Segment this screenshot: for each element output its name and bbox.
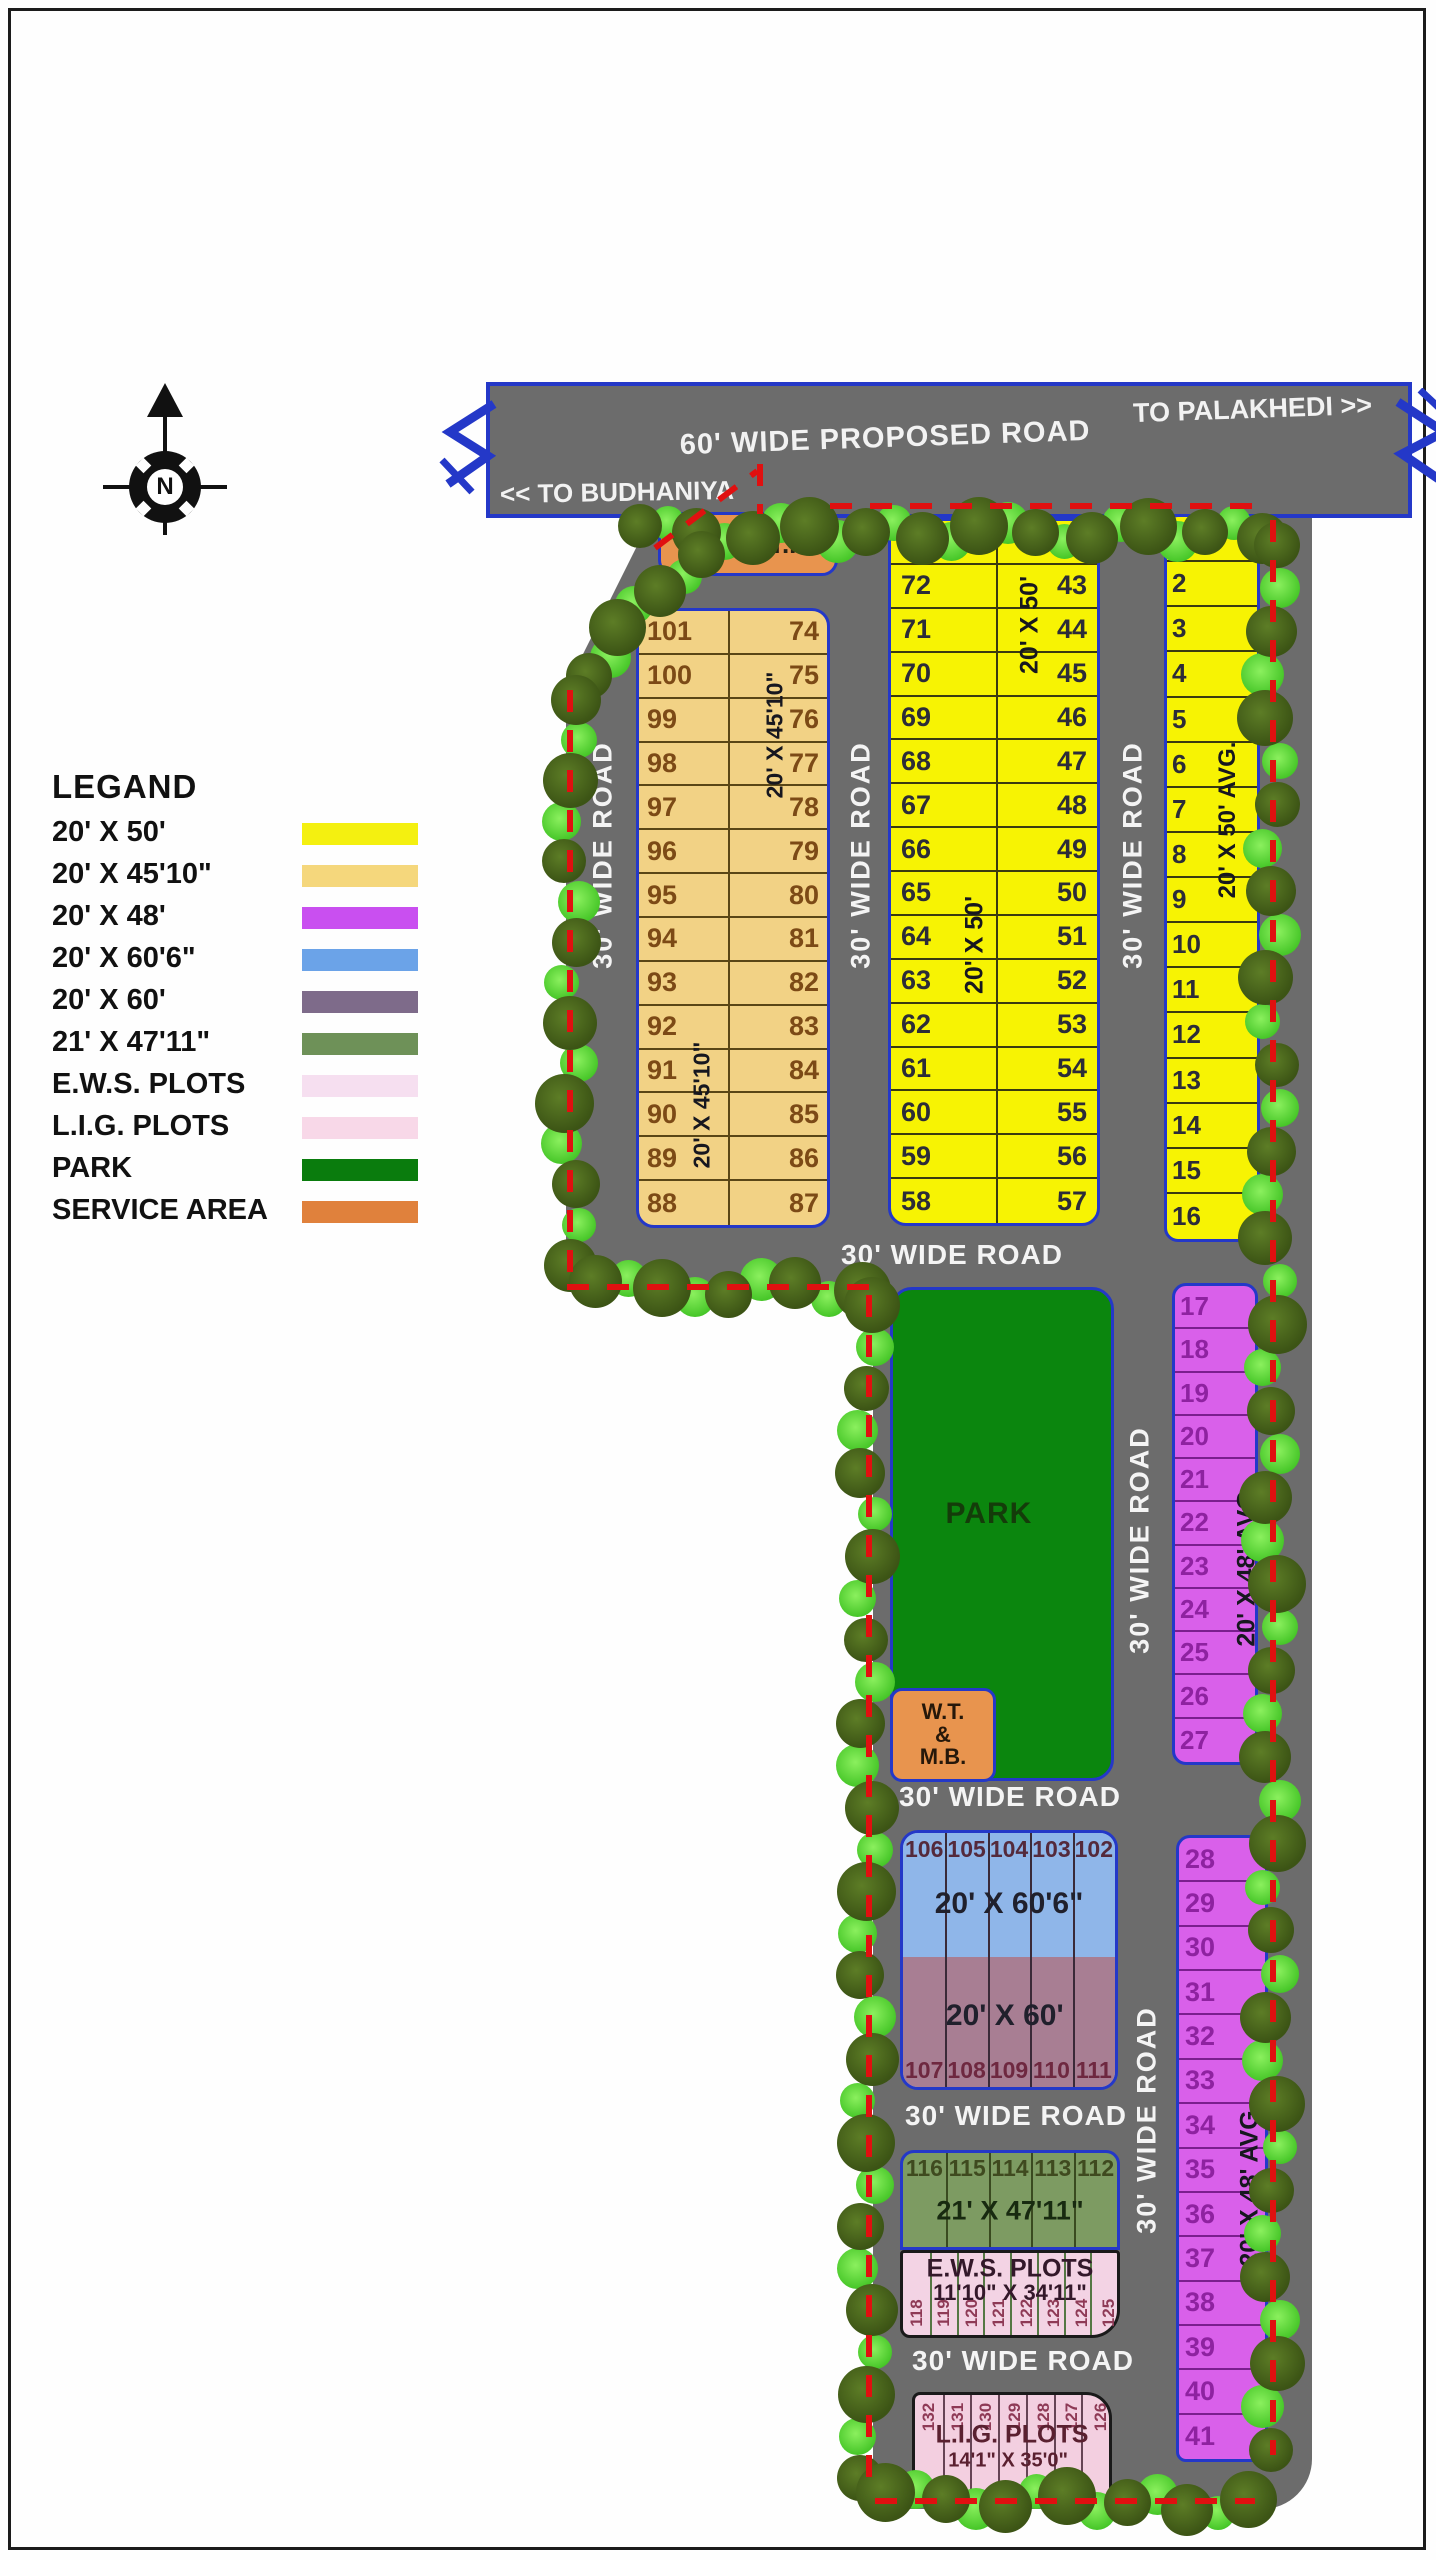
legend-item: 20' X 60' <box>52 984 452 1026</box>
legend-item-label: 20' X 45'10" <box>52 858 212 890</box>
boundary-dash <box>875 2498 1255 2504</box>
bush-icon <box>1263 2130 1297 2164</box>
tree-icon <box>1240 2252 1290 2302</box>
bush-icon <box>1260 568 1300 608</box>
bush-icon <box>1260 2300 1300 2340</box>
tree-icon <box>1012 509 1059 556</box>
legend-item-label: L.I.G. PLOTS <box>52 1110 229 1142</box>
legend-swatch <box>302 991 418 1013</box>
legend-swatch <box>302 949 418 971</box>
bush-icon <box>854 1996 896 2038</box>
legend-item-label: 20' X 50' <box>52 816 166 848</box>
road-label-vertical: 30' WIDE ROAD <box>846 741 877 968</box>
wt-mb-line: W.T. <box>922 1701 965 1723</box>
wt-mb-line: & <box>935 1724 951 1746</box>
bush-icon <box>856 1328 894 1366</box>
legend-item-label: 20' X 60'6" <box>52 942 196 974</box>
legend-swatch <box>302 1117 418 1139</box>
park-label: PARK <box>946 1497 1033 1531</box>
plot-113: 113 <box>1031 2155 1074 2182</box>
tree-icon <box>835 1448 885 1498</box>
plot-81: 81 <box>730 918 827 962</box>
plot-59: 59 <box>891 1135 998 1179</box>
plot-49: 49 <box>998 828 1097 872</box>
tree-icon <box>836 1951 884 1999</box>
legend-item: 20' X 50' <box>52 816 452 858</box>
tree-icon <box>1239 1731 1291 1783</box>
plot-56: 56 <box>998 1135 1097 1179</box>
plot-55: 55 <box>998 1091 1097 1135</box>
tree-icon <box>726 511 780 565</box>
plot-87: 87 <box>730 1181 827 1225</box>
plot-116: 116 <box>903 2155 946 2182</box>
road-label-vertical: 30' WIDE ROAD <box>1118 741 1149 968</box>
block-khaki-45-10: 1017410075997698779778967995809481938292… <box>636 608 830 1228</box>
legend-item: 20' X 45'10" <box>52 858 452 900</box>
plot-18: 18 <box>1175 1329 1255 1372</box>
tree-icon <box>1250 2336 1305 2391</box>
plot-71: 71 <box>891 609 998 653</box>
plot-51: 51 <box>998 916 1097 960</box>
plot-61: 61 <box>891 1048 998 1092</box>
plot-90: 90 <box>639 1093 730 1137</box>
boundary-dash <box>866 1295 872 2495</box>
plot-80: 80 <box>730 874 827 918</box>
column-divider <box>945 1833 947 2087</box>
plot-14: 14 <box>1167 1104 1257 1149</box>
plot-62: 62 <box>891 1004 998 1048</box>
compass-diamond <box>179 458 195 474</box>
bush-icon <box>1242 1174 1283 1215</box>
lig-title: L.I.G. PLOTS <box>936 2421 1089 2450</box>
tree-icon <box>1239 1471 1292 1524</box>
plot-82: 82 <box>730 962 827 1006</box>
mauve-plot-numbers: 107108109110111 <box>903 2057 1115 2084</box>
block-yellow-50: 7342724371447045694668476748664965506451… <box>888 518 1100 1226</box>
tree-icon <box>551 675 601 725</box>
green-plot-numbers: 116115114113112 <box>903 2155 1117 2182</box>
compass-diamond <box>179 501 195 517</box>
block-green-47-11: 116115114113112 21' X 47'11" <box>900 2150 1120 2250</box>
plot-45: 45 <box>998 653 1097 697</box>
plot-19: 19 <box>1175 1373 1255 1416</box>
plot-110: 110 <box>1030 2057 1072 2084</box>
plot-53: 53 <box>998 1004 1097 1048</box>
tree-icon <box>705 1271 752 1318</box>
plot-88: 88 <box>639 1181 730 1225</box>
legend-swatch <box>302 1033 418 1055</box>
plot-9: 9 <box>1167 878 1257 923</box>
plot-12: 12 <box>1167 1013 1257 1058</box>
plot-111: 111 <box>1073 2057 1115 2084</box>
road-label-vertical: 30' WIDE ROAD <box>1132 2006 1163 2233</box>
tree-icon <box>1254 522 1300 568</box>
legend-item: 20' X 48' <box>52 900 452 942</box>
legend-title: LEGAND <box>52 768 452 806</box>
plot-20: 20 <box>1175 1416 1255 1459</box>
plot-69: 69 <box>891 697 998 741</box>
plot-46: 46 <box>998 697 1097 741</box>
plot-105: 105 <box>945 1836 987 1863</box>
plot-43: 43 <box>998 565 1097 609</box>
tree-icon <box>837 2203 884 2250</box>
legend-swatch <box>302 1159 418 1181</box>
tree-icon <box>1255 1043 1299 1087</box>
tree-icon <box>1038 2467 1096 2525</box>
plot-84: 84 <box>730 1050 827 1094</box>
bush-icon <box>1242 2040 1283 2081</box>
tree-icon <box>845 1781 899 1835</box>
plot-86: 86 <box>730 1137 827 1181</box>
proposed-road-label: 60' WIDE PROPOSED ROAD <box>673 415 1096 463</box>
tree-icon <box>634 565 686 617</box>
plot-17: 17 <box>1175 1286 1255 1329</box>
legend-rows: 20' X 50'20' X 45'10"20' X 48'20' X 60'6… <box>52 816 452 1236</box>
plot-114: 114 <box>989 2155 1032 2182</box>
plot-101: 101 <box>639 611 730 655</box>
size-label-yellow: 20' X 50' <box>961 896 990 994</box>
legend-item: SERVICE AREA <box>52 1194 452 1236</box>
compass-diamond <box>136 501 152 517</box>
road-label-horizontal: 30' WIDE ROAD <box>905 2100 1127 2132</box>
plot-66: 66 <box>891 828 998 872</box>
legend-swatch <box>302 907 418 929</box>
plot-54: 54 <box>998 1048 1097 1092</box>
plot-115: 115 <box>946 2155 989 2182</box>
plot-67: 67 <box>891 784 998 828</box>
block-blue-mauve: 20' X 60'6" 20' X 60' 106105104103102 10… <box>900 1830 1118 2090</box>
plot-94: 94 <box>639 918 730 962</box>
to-budhaniya-label: << TO BUDHANIYA <box>500 475 735 510</box>
bush-icon <box>1241 2385 1284 2428</box>
bush-icon <box>1259 914 1301 956</box>
compass-ring: N <box>129 451 201 523</box>
plot-99: 99 <box>639 699 730 743</box>
tree-icon <box>1249 2076 1305 2132</box>
bush-icon <box>855 1662 895 1702</box>
tree-icon <box>1255 782 1300 827</box>
plot-13: 13 <box>1167 1059 1257 1104</box>
plot-89: 89 <box>639 1137 730 1181</box>
tree-icon <box>552 1160 600 1208</box>
plot-100: 100 <box>639 655 730 699</box>
tree-icon <box>552 918 601 967</box>
block-ews: E.W.S. PLOTS 11'10" X 34'11" 11811912012… <box>900 2250 1120 2338</box>
tree-icon <box>979 2480 1032 2533</box>
plot-60: 60 <box>891 1091 998 1135</box>
bush-icon <box>1260 1434 1300 1474</box>
plot-7: 7 <box>1167 788 1257 833</box>
plot-97: 97 <box>639 786 730 830</box>
tree-icon <box>1066 512 1118 564</box>
bush-icon <box>1261 1955 1299 1993</box>
plot-2: 2 <box>1167 562 1257 607</box>
plot-57: 57 <box>998 1179 1097 1223</box>
plot-47: 47 <box>998 740 1097 784</box>
plot-112: 112 <box>1074 2155 1117 2182</box>
tree-icon <box>1237 690 1293 746</box>
plot-109: 109 <box>988 2057 1030 2084</box>
plot-72: 72 <box>891 565 998 609</box>
legend-swatch <box>302 865 418 887</box>
column-divider <box>988 1833 990 2087</box>
plot-106: 106 <box>903 1836 945 1863</box>
bush-icon <box>1263 1264 1297 1298</box>
compass-north-label: N <box>147 469 183 505</box>
column-divider <box>1073 1833 1075 2087</box>
site-plan-page: N LEGAND 20' X 50'20' X 45'10"20' X 48'2… <box>0 0 1436 2560</box>
tree-icon <box>618 504 662 548</box>
plot-108: 108 <box>945 2057 987 2084</box>
size-label-khaki: 20' X 45'10" <box>689 1042 716 1169</box>
plot-48: 48 <box>998 784 1097 828</box>
tree-icon <box>845 1529 900 1584</box>
tree-icon <box>1248 1295 1307 1354</box>
tree-icon <box>1248 1555 1306 1613</box>
tree-icon <box>896 512 949 565</box>
tree-icon <box>1238 950 1293 1005</box>
tree-icon <box>1240 1992 1291 2043</box>
compass-rose-icon: N <box>95 383 235 543</box>
plot-92: 92 <box>639 1006 730 1050</box>
legend-item-label: 21' X 47'11" <box>52 1026 210 1058</box>
tree-icon <box>589 599 646 656</box>
legend-swatch <box>302 1201 418 1223</box>
road-label-vertical: 30' WIDE ROAD <box>1125 1426 1156 1653</box>
mauve-size-label: 20' X 60' <box>946 1999 1064 2033</box>
plot-58: 58 <box>891 1179 998 1223</box>
plot-50: 50 <box>998 872 1097 916</box>
north-arrow-icon <box>147 383 183 417</box>
tree-icon <box>846 2033 899 2086</box>
size-label-east: 20' X 50' AVG. <box>1214 742 1242 899</box>
plot-98: 98 <box>639 743 730 787</box>
legend-item-label: 20' X 60' <box>52 984 166 1016</box>
plot-107: 107 <box>903 2057 945 2084</box>
plot-102: 102 <box>1073 1836 1115 1863</box>
plot-83: 83 <box>730 1006 827 1050</box>
legend-item-label: PARK <box>52 1152 132 1184</box>
legend-item: 21' X 47'11" <box>52 1026 452 1068</box>
tree-icon <box>856 2463 915 2522</box>
blue-size-label: 20' X 60'6" <box>935 1887 1084 1921</box>
plot-44: 44 <box>998 609 1097 653</box>
plot-68: 68 <box>891 740 998 784</box>
tree-icon <box>1238 1211 1292 1265</box>
plot-70: 70 <box>891 653 998 697</box>
column-divider <box>1030 1833 1032 2087</box>
plot-6: 6 <box>1167 743 1257 788</box>
tree-icon <box>569 1255 622 1308</box>
block-east-50-avg: 12345678910111213141516 <box>1164 514 1260 1242</box>
legend-swatch <box>302 1075 418 1097</box>
bush-icon <box>1261 1089 1299 1127</box>
road-break-icon <box>438 398 500 502</box>
legend-item: E.W.S. PLOTS <box>52 1068 452 1110</box>
tree-icon <box>535 1074 594 1133</box>
compass-diamond <box>136 458 152 474</box>
legend-item: L.I.G. PLOTS <box>52 1110 452 1152</box>
proposed-road-band: 60' WIDE PROPOSED ROAD TO PALAKHEDI >> <… <box>486 382 1412 518</box>
tree-icon <box>678 531 725 578</box>
plot-74: 74 <box>730 611 827 655</box>
bush-icon <box>544 965 579 1000</box>
boundary-dash <box>567 690 573 1284</box>
tree-icon <box>836 1699 885 1748</box>
legend-item: 20' X 60'6" <box>52 942 452 984</box>
size-label-khaki: 20' X 45'10" <box>762 672 789 799</box>
road-break-icon <box>1392 388 1436 504</box>
legend-item: PARK <box>52 1152 452 1194</box>
tree-icon <box>1249 1815 1306 1872</box>
legend-item-label: E.W.S. PLOTS <box>52 1068 245 1100</box>
plot-125: 125 <box>1099 2299 1119 2327</box>
plot-52: 52 <box>998 960 1097 1004</box>
plot-126: 126 <box>1091 2403 1111 2431</box>
plot-3: 3 <box>1167 607 1257 652</box>
road-label-horizontal: 30' WIDE ROAD <box>912 2345 1134 2377</box>
legend-item-label: SERVICE AREA <box>52 1194 268 1226</box>
plot-104: 104 <box>988 1836 1030 1863</box>
boundary-dash <box>567 1284 870 1290</box>
lig-size-label: 14'1" X 35'0" <box>948 2450 1068 2473</box>
wt-mb-box: W.T. & M.B. <box>890 1688 996 1782</box>
legend-swatch <box>302 823 418 845</box>
plot-96: 96 <box>639 830 730 874</box>
legend-item-label: 20' X 48' <box>52 900 166 932</box>
bush-icon <box>558 881 600 923</box>
road-label-horizontal: 30' WIDE ROAD <box>899 1781 1121 1813</box>
blue-plot-numbers: 106105104103102 <box>903 1836 1115 1863</box>
plot-85: 85 <box>730 1093 827 1137</box>
ews-size-label: 11'10" X 34'11" <box>933 2280 1087 2306</box>
plot-95: 95 <box>639 874 730 918</box>
green-size-label: 21' X 47'11" <box>936 2196 1083 2227</box>
boundary-dash <box>830 503 1268 509</box>
plot-118: 118 <box>907 2299 927 2326</box>
to-palakhedi-label: TO PALAKHEDI >> <box>1132 390 1372 429</box>
plot-79: 79 <box>730 830 827 874</box>
legend: LEGAND 20' X 50'20' X 45'10"20' X 48'20'… <box>52 768 452 1236</box>
tree-icon <box>1161 2484 1213 2536</box>
plot-93: 93 <box>639 962 730 1006</box>
wt-mb-line: M.B. <box>920 1746 966 1768</box>
boundary-dash <box>1270 520 1276 2455</box>
plot-91: 91 <box>639 1050 730 1094</box>
size-label-yellow: 20' X 50' <box>1016 576 1045 674</box>
tree-icon <box>842 508 890 556</box>
plot-103: 103 <box>1030 1836 1072 1863</box>
